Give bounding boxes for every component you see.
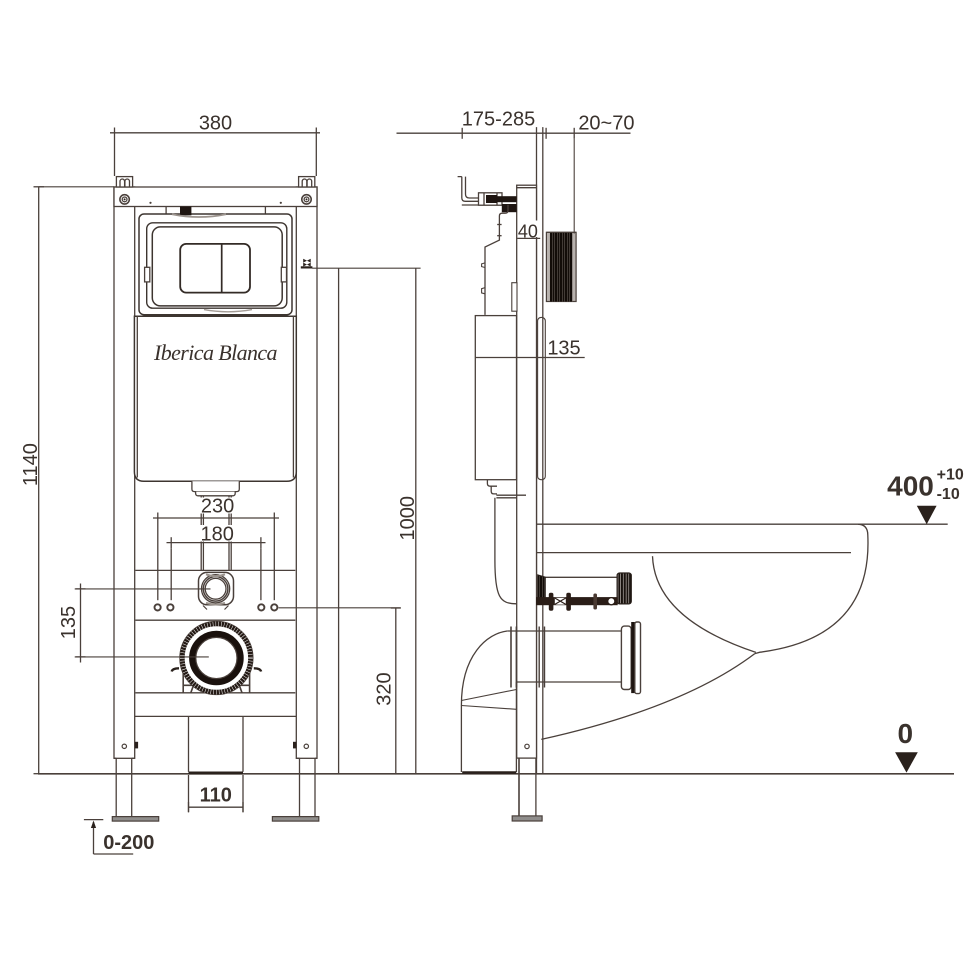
svg-text:110: 110 (200, 785, 232, 807)
svg-text:+10: +10 (937, 467, 964, 484)
svg-text:380: 380 (199, 113, 232, 135)
svg-text:40: 40 (518, 222, 538, 242)
svg-text:Iberica Blanca: Iberica Blanca (153, 340, 278, 365)
svg-text:180: 180 (201, 524, 234, 546)
svg-text:400: 400 (887, 471, 934, 502)
svg-text:1140: 1140 (20, 443, 42, 486)
svg-text:135: 135 (58, 606, 80, 639)
svg-text:20~70: 20~70 (578, 113, 634, 135)
svg-text:0: 0 (898, 718, 914, 749)
svg-text:175-285: 175-285 (462, 109, 535, 131)
svg-text:230: 230 (201, 496, 234, 518)
svg-text:0-200: 0-200 (103, 832, 154, 854)
svg-text:135: 135 (547, 338, 580, 360)
svg-text:1000: 1000 (397, 496, 419, 541)
svg-text:-10: -10 (937, 486, 960, 503)
svg-text:320: 320 (374, 672, 396, 705)
